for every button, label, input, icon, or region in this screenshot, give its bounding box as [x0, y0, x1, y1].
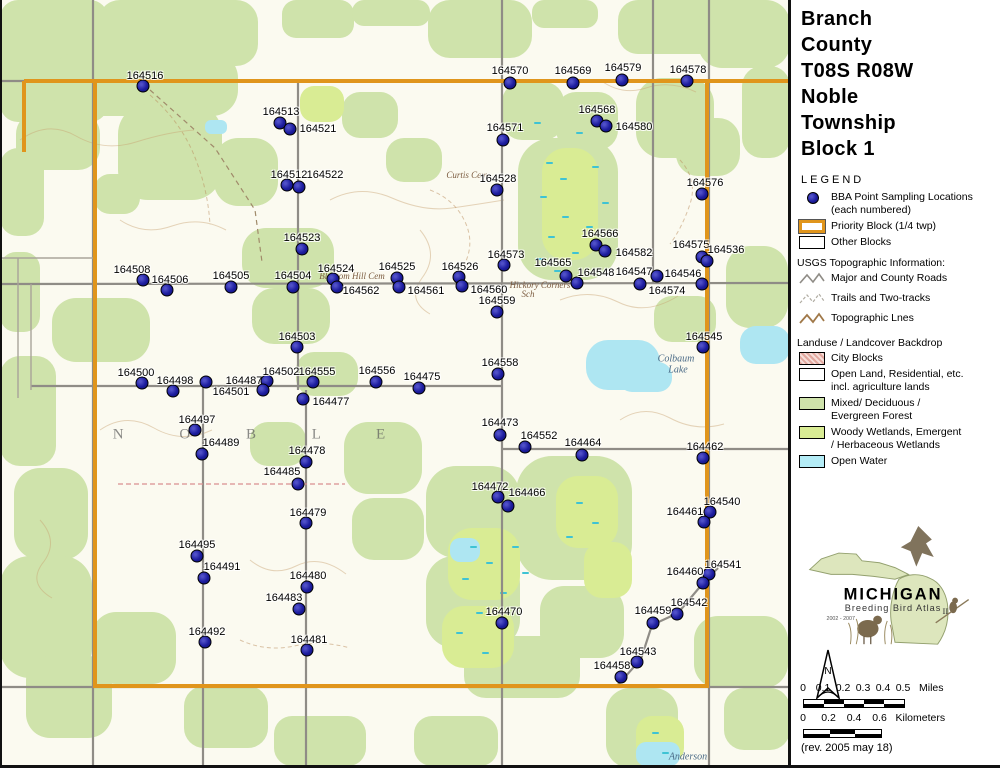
sampling-point-dot — [413, 382, 426, 395]
scale-tick-label: 0.2 — [821, 712, 836, 724]
sampling-point-label: 164541 — [705, 559, 742, 571]
sampling-point-dot — [331, 281, 344, 294]
legend-label: Trails and Two-tracks — [831, 292, 930, 305]
sampling-point-dot — [681, 75, 694, 88]
scale-tick-label: 0.4 — [847, 712, 862, 724]
sampling-point-dot — [697, 452, 710, 465]
sampling-point-label: 164569 — [555, 65, 592, 77]
info-panel: Branch County T08S R08W Noble Township B… — [791, 0, 1000, 768]
sampling-point-label: 164536 — [708, 244, 745, 256]
sampling-point-label: 164508 — [114, 264, 151, 276]
sampling-point-label: 164498 — [157, 375, 194, 387]
scale-bar-segment — [844, 704, 864, 708]
sampling-point-dot — [696, 278, 709, 291]
sampling-point-label: 164504 — [275, 270, 312, 282]
sampling-point-dot — [296, 243, 309, 256]
sampling-point-dot — [567, 77, 580, 90]
sampling-point-dot — [519, 441, 532, 454]
sampling-point-label: 164566 — [582, 228, 619, 240]
woody-wetlands-swatch — [799, 426, 825, 439]
sampling-point-label: 164522 — [307, 169, 344, 181]
sampling-point-dot — [671, 608, 684, 621]
sampling-point-dot — [634, 278, 647, 291]
sampling-point-dot — [502, 500, 515, 513]
scale-tick-label: 0 — [800, 712, 806, 724]
sampling-point-dot — [616, 74, 629, 87]
scale-bar-segment — [855, 734, 881, 738]
title-line: Block 1 — [801, 136, 1000, 162]
sampling-point-dot — [651, 270, 664, 283]
bobwhite-head — [873, 616, 882, 625]
legend-item-open-land: Open Land, Residential, etc. incl. agric… — [799, 368, 1000, 394]
legend-item-forest: Mixed/ Deciduous / Evergreen Forest — [799, 397, 1000, 423]
map-sheet: Curtis CemHickory CornersSchBlossom Hill… — [0, 0, 1000, 768]
sampling-point-label: 164506 — [152, 274, 189, 286]
sampling-point-label: 164485 — [264, 466, 301, 478]
title-line: County — [801, 32, 1000, 58]
scale-unit-label: Miles — [919, 682, 944, 694]
sampling-point-label: 164461 — [667, 506, 704, 518]
sampling-point-label: 164528 — [480, 173, 517, 185]
sampling-point-label: 164470 — [486, 606, 523, 618]
km-tick-labels: 00.20.40.6Kilometers — [799, 712, 999, 724]
perched-bird-head — [952, 598, 958, 604]
sampling-point-label: 164501 — [213, 386, 250, 398]
sampling-point-label: 164524 — [318, 263, 355, 275]
sampling-point-label: 164552 — [521, 430, 558, 442]
legend-label: Open Water — [831, 455, 887, 468]
point-dot-icon — [799, 191, 825, 205]
sampling-point-label: 164523 — [284, 232, 321, 244]
legend-item-open-water: Open Water — [799, 455, 1000, 468]
sampling-point-label: 164472 — [472, 481, 509, 493]
sampling-point-label: 164562 — [343, 285, 380, 297]
open-water-swatch — [799, 455, 825, 468]
sampling-point-label: 164561 — [408, 285, 445, 297]
scale-tick-label: 0 — [800, 682, 806, 694]
scale-bar-segment — [884, 704, 904, 708]
sampling-point-dot — [225, 281, 238, 294]
sampling-point-label: 164576 — [687, 177, 724, 189]
panel-divider — [788, 0, 791, 768]
legend-item-priority-block: Priority Block (1/4 twp) — [799, 220, 1000, 233]
logo-title: MICHIGAN — [844, 586, 943, 604]
sampling-point-label: 164495 — [179, 539, 216, 551]
sampling-point-label: 164543 — [620, 646, 657, 658]
sampling-point-dot — [393, 281, 406, 294]
sampling-point-dot — [300, 456, 313, 469]
sampling-point-label: 164460 — [667, 566, 704, 578]
sampling-point-label: 164542 — [671, 597, 708, 609]
sampling-point-label: 164568 — [579, 104, 616, 116]
scale-bar-segment — [864, 704, 884, 708]
sampling-point-dot — [615, 671, 628, 684]
legend-label: Priority Block (1/4 twp) — [831, 220, 936, 233]
logo-numeral: II — [942, 606, 948, 616]
sampling-point-dot — [491, 306, 504, 319]
sampling-point-dot — [284, 123, 297, 136]
sampling-point-label: 164479 — [290, 507, 327, 519]
sampling-point-label: 164459 — [635, 605, 672, 617]
sampling-point-label: 164548 — [578, 267, 615, 279]
scalebar-kilometers: 00.20.40.6Kilometers — [799, 712, 999, 742]
map-title: Branch County T08S R08W Noble Township B… — [791, 0, 1000, 162]
trails-zigzag-icon — [799, 292, 825, 309]
sampling-point-label: 164558 — [482, 357, 519, 369]
km-bar — [803, 729, 882, 738]
sampling-point-label: 164458 — [594, 660, 631, 672]
scale-bar-segment — [804, 734, 830, 738]
sampling-point-label: 164521 — [300, 123, 337, 135]
topographic-map: Curtis CemHickory CornersSchBlossom Hill… — [0, 0, 790, 768]
mbba-logo: MICHIGAN Breeding Bird Atlas 2002 - 2007… — [797, 524, 993, 655]
sampling-point-label: 164547 — [616, 266, 653, 278]
roads-zigzag-icon — [799, 272, 825, 289]
legend-label: Open Land, Residential, etc. incl. agric… — [831, 368, 964, 394]
sampling-point-label: 164481 — [291, 634, 328, 646]
sampling-point-dot — [257, 384, 270, 397]
logo-subtitle: Breeding Bird Atlas — [845, 603, 942, 613]
sampling-point-label: 164464 — [565, 437, 602, 449]
sampling-point-label: 164505 — [213, 270, 250, 282]
sampling-point-dot — [200, 376, 213, 389]
north-label: N — [824, 666, 831, 677]
sampling-point-dot — [287, 281, 300, 294]
scale-tick-label: 0.5 — [896, 682, 911, 694]
legend-label: BBA Point Sampling Locations (each numbe… — [831, 191, 973, 217]
open-land-swatch — [799, 368, 825, 381]
logo-years: 2002 - 2007 — [826, 616, 854, 622]
legend-item-topo-lines: Topographic Lnes — [799, 312, 1000, 329]
scale-tick-label: 0.3 — [856, 682, 871, 694]
sampling-point-label: 164475 — [404, 371, 441, 383]
michigan-up-shape — [810, 553, 909, 579]
sampling-point-label: 164573 — [488, 249, 525, 261]
title-line: Noble — [801, 84, 1000, 110]
sampling-point-dot — [292, 478, 305, 491]
sampling-point-label: 164500 — [118, 367, 155, 379]
scale-bar-segment — [830, 734, 856, 738]
legend-item-roads: Major and County Roads — [799, 272, 1000, 289]
revision-note: (rev. 2005 may 18) — [801, 742, 893, 754]
legend-item-trails: Trails and Two-tracks — [799, 292, 1000, 309]
sampling-point-label: 164502 — [263, 366, 300, 378]
priority-block-swatch — [799, 220, 825, 233]
usgs-heading: USGS Topographic Information: — [797, 257, 1000, 269]
sampling-point-dot — [504, 77, 517, 90]
sampling-point-label: 164579 — [605, 62, 642, 74]
sampling-point-label: 164489 — [203, 437, 240, 449]
sampling-point-label: 164480 — [290, 570, 327, 582]
sampling-point-dot — [196, 448, 209, 461]
sampling-point-label: 164574 — [649, 285, 686, 297]
sampling-point-label: 164571 — [487, 122, 524, 134]
miles-tick-labels: 00.10.20.30.40.5Miles — [799, 682, 999, 694]
frame-border-left — [0, 0, 2, 768]
sampling-point-label: 164525 — [379, 261, 416, 273]
miles-bar — [803, 699, 905, 708]
sampling-point-label: 164580 — [616, 121, 653, 133]
title-line: T08S R08W — [801, 58, 1000, 84]
sampling-point-dot — [491, 184, 504, 197]
sampling-point-dot — [191, 550, 204, 563]
scale-unit-label: Kilometers — [896, 712, 946, 724]
legend-item-sampling-points: BBA Point Sampling Locations (each numbe… — [799, 191, 1000, 217]
sampling-point-dot — [497, 134, 510, 147]
sampling-point-dot — [647, 617, 660, 630]
sampling-point-label: 164466 — [509, 487, 546, 499]
sampling-point-dot — [576, 449, 589, 462]
sampling-point-label: 164473 — [482, 417, 519, 429]
sampling-point-dot — [599, 245, 612, 258]
sampling-point-label: 164483 — [266, 592, 303, 604]
sampling-point-label: 164478 — [289, 445, 326, 457]
sampling-point-label: 164462 — [687, 441, 724, 453]
city-blocks-swatch — [799, 352, 825, 365]
sampling-point-label: 164503 — [279, 331, 316, 343]
scale-bar-segment — [824, 704, 844, 708]
sampling-point-dot — [293, 181, 306, 194]
scale-tick-label: 0.4 — [876, 682, 891, 694]
sampling-point-dot — [492, 368, 505, 381]
sampling-point-dot — [494, 429, 507, 442]
legend-label: Major and County Roads — [831, 272, 947, 285]
scale-bar-segment — [804, 704, 824, 708]
sampling-points-layer: 1645161645701645691645791645781645131645… — [0, 0, 790, 768]
legend-label: Mixed/ Deciduous / Evergreen Forest — [831, 397, 920, 423]
sampling-point-label: 164555 — [299, 366, 336, 378]
sampling-point-label: 164556 — [359, 365, 396, 377]
sampling-point-dot — [198, 572, 211, 585]
sampling-point-dot — [297, 393, 310, 406]
sampling-point-label: 164497 — [179, 414, 216, 426]
sampling-point-label: 164578 — [670, 64, 707, 76]
sampling-point-dot — [456, 280, 469, 293]
sampling-point-label: 164513 — [263, 106, 300, 118]
legend-item-city-blocks: City Blocks — [799, 352, 1000, 365]
sampling-point-label: 164477 — [313, 396, 350, 408]
sampling-point-dot — [600, 120, 613, 133]
legend-label: Topographic Lnes — [831, 312, 914, 325]
scalebar-miles: 00.10.20.30.40.5Miles — [799, 682, 999, 712]
sampling-point-label: 164565 — [535, 257, 572, 269]
sampling-point-label: 164575 — [673, 239, 710, 251]
legend-label: City Blocks — [831, 352, 883, 365]
sampling-point-dot — [696, 188, 709, 201]
legend-item-other-blocks: Other Blocks — [799, 236, 1000, 249]
sampling-point-dot — [697, 577, 710, 590]
sampling-point-dot — [701, 255, 714, 268]
sampling-point-dot — [293, 603, 306, 616]
sampling-point-label: 164512 — [271, 169, 308, 181]
legend-heading: LEGEND — [791, 162, 1000, 188]
sampling-point-label: 164570 — [492, 65, 529, 77]
legend-label: Woody Wetlands, Emergent / Herbaceous We… — [831, 426, 961, 452]
sampling-point-label: 164526 — [442, 261, 479, 273]
sampling-point-label: 164559 — [479, 295, 516, 307]
scale-tick-label: 0.6 — [872, 712, 887, 724]
other-blocks-swatch — [799, 236, 825, 249]
sampling-point-label: 164546 — [665, 268, 702, 280]
sampling-point-label: 164492 — [189, 626, 226, 638]
scale-tick-label: 0.2 — [836, 682, 851, 694]
sampling-point-label: 164491 — [204, 561, 241, 573]
sampling-point-label: 164545 — [686, 331, 723, 343]
title-line: Branch — [801, 6, 1000, 32]
sampling-point-label: 164540 — [704, 496, 741, 508]
hawk-icon — [901, 526, 934, 567]
scale-tick-label: 0.1 — [816, 682, 831, 694]
sampling-point-dot — [496, 617, 509, 630]
sampling-point-label: 164516 — [127, 70, 164, 82]
landuse-heading: Landuse / Landcover Backdrop — [797, 337, 1000, 349]
title-line: Township — [801, 110, 1000, 136]
sampling-point-dot — [370, 376, 383, 389]
forest-swatch — [799, 397, 825, 410]
legend-item-woody-wetlands: Woody Wetlands, Emergent / Herbaceous We… — [799, 426, 1000, 452]
sampling-point-label: 164582 — [616, 247, 653, 259]
legend-label: Other Blocks — [831, 236, 891, 249]
topo-zigzag-icon — [799, 312, 825, 329]
